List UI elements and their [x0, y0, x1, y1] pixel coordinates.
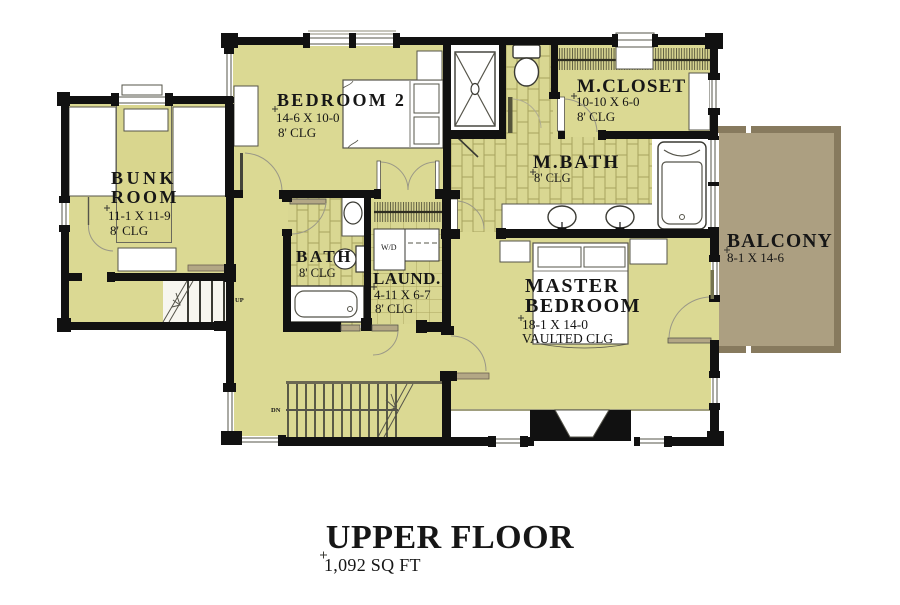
- svg-text:ROOM: ROOM: [111, 187, 179, 207]
- svg-text:8' CLG: 8' CLG: [534, 171, 571, 185]
- svg-text:BUNK: BUNK: [111, 168, 177, 188]
- svg-text:BEDROOM 2: BEDROOM 2: [277, 90, 406, 110]
- svg-text:4-11 X 6-7: 4-11 X 6-7: [374, 287, 431, 302]
- svg-text:18-1 X 14-0: 18-1 X 14-0: [522, 317, 588, 332]
- svg-text:1,092 SQ FT: 1,092 SQ FT: [324, 555, 421, 575]
- svg-text:8' CLG: 8' CLG: [375, 301, 413, 316]
- svg-text:MASTER: MASTER: [525, 275, 620, 297]
- svg-text:8' CLG: 8' CLG: [110, 223, 148, 238]
- svg-text:M.BATH: M.BATH: [533, 152, 620, 173]
- svg-text:BATH: BATH: [296, 247, 353, 266]
- svg-text:8' CLG: 8' CLG: [299, 266, 336, 280]
- svg-text:W/D: W/D: [381, 243, 397, 252]
- svg-text:UP: UP: [235, 297, 244, 304]
- svg-text:DN: DN: [271, 407, 281, 414]
- svg-text:10-10 X 6-0: 10-10 X 6-0: [576, 94, 640, 109]
- svg-text:VAULTED CLG: VAULTED CLG: [522, 331, 613, 346]
- svg-text:8' CLG: 8' CLG: [278, 125, 316, 140]
- svg-text:BALCONY: BALCONY: [727, 231, 833, 252]
- svg-text:UPPER FLOOR: UPPER FLOOR: [326, 519, 574, 556]
- svg-text:8' CLG: 8' CLG: [577, 109, 615, 124]
- svg-text:8-1 X 14-6: 8-1 X 14-6: [727, 250, 785, 265]
- svg-text:BEDROOM: BEDROOM: [525, 295, 641, 317]
- svg-text:LAUND.: LAUND.: [373, 269, 441, 288]
- svg-text:14-6 X 10-0: 14-6 X 10-0: [276, 110, 340, 125]
- svg-text:11-1 X 11-9: 11-1 X 11-9: [108, 208, 171, 223]
